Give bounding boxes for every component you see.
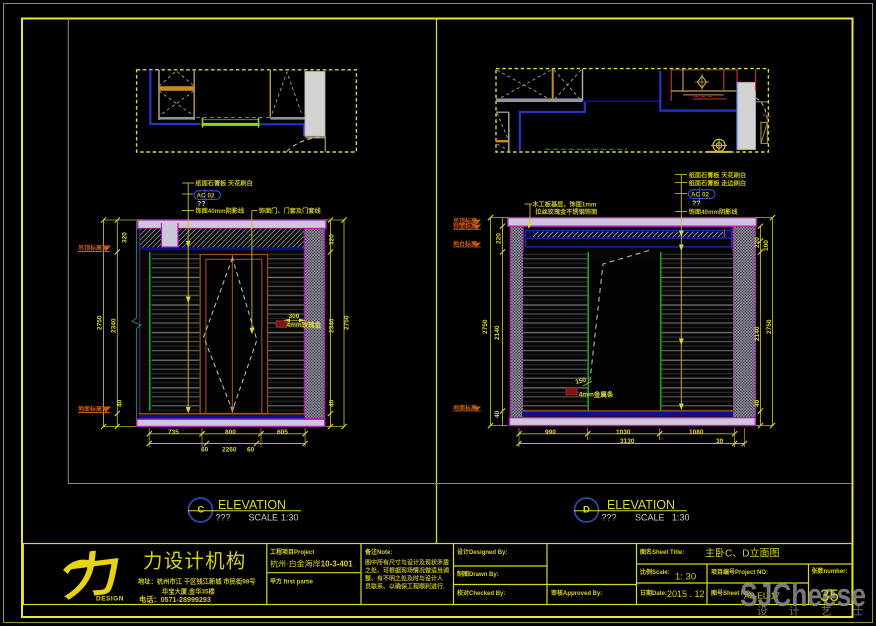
svg-text:1:30: 1:30 — [672, 513, 690, 523]
svg-text:纸面石膏板 天花刷白: 纸面石膏板 天花刷白 — [689, 171, 746, 179]
svg-text:2015 . 12: 2015 . 12 — [667, 589, 705, 599]
svg-text:735: 735 — [168, 429, 179, 436]
svg-text:35: 35 — [820, 586, 839, 605]
svg-text:3130: 3130 — [620, 438, 635, 445]
svg-text:990: 990 — [545, 429, 556, 436]
svg-text:拉丝玫瑰金不锈钢饰面: 拉丝玫瑰金不锈钢饰面 — [535, 208, 597, 216]
svg-text:地面标高: 地面标高 — [78, 405, 102, 413]
svg-text:SCALE: SCALE — [635, 513, 665, 523]
svg-text:2750: 2750 — [97, 315, 104, 330]
svg-text:2340: 2340 — [329, 318, 336, 333]
svg-text:工程项目Project: 工程项目Project — [270, 548, 314, 556]
svg-text:审核Approved By:: 审核Approved By: — [551, 589, 602, 597]
svg-text:SCALE: SCALE — [249, 513, 279, 523]
svg-text:员联系、以确保工程顺利进行.: 员联系、以确保工程顺利进行. — [365, 583, 445, 591]
svg-text:1: 30: 1: 30 — [675, 572, 696, 583]
svg-text:木工板基层，饰面1mm: 木工板基层，饰面1mm — [531, 201, 596, 209]
svg-text:40: 40 — [329, 399, 336, 407]
svg-text:2750: 2750 — [344, 315, 351, 330]
svg-text:2340: 2340 — [111, 318, 118, 333]
svg-text:02: 02 — [208, 192, 215, 199]
svg-text:整、有不明之处及时与设计人: 整、有不明之处及时与设计人 — [364, 575, 444, 583]
svg-text:日期Date:: 日期Date: — [640, 589, 667, 597]
svg-text:之处、可根据现场情况做适当调: 之处、可根据现场情况做适当调 — [365, 567, 449, 575]
svg-text:1:30: 1:30 — [281, 513, 299, 523]
svg-text:主卧C、D立面图: 主卧C、D立面图 — [705, 547, 779, 560]
svg-text:2750: 2750 — [766, 319, 773, 334]
svg-text:图名Sheet Title:: 图名Sheet Title: — [640, 548, 684, 556]
svg-text:2140: 2140 — [494, 325, 501, 340]
svg-text:30: 30 — [716, 438, 724, 445]
svg-text:力设计机构: 力设计机构 — [143, 551, 247, 573]
svg-text:ELEVATION: ELEVATION — [218, 498, 286, 512]
svg-text:校对Checked By:: 校对Checked By: — [457, 589, 505, 597]
svg-text:220: 220 — [754, 237, 761, 248]
svg-text:图中所有尺寸与设计及现状矛盾: 图中所有尺寸与设计及现状矛盾 — [365, 559, 449, 567]
svg-text:张数number:: 张数number: — [812, 567, 848, 575]
svg-text:ELEVATION: ELEVATION — [607, 498, 675, 512]
svg-text:纸面石膏板 天花刷白: 纸面石膏板 天花刷白 — [195, 180, 252, 188]
svg-text:电话：0571-28999293: 电话：0571-28999293 — [139, 595, 211, 604]
svg-text:320: 320 — [122, 232, 129, 243]
svg-text:???: ??? — [216, 513, 231, 523]
svg-text:300: 300 — [289, 313, 300, 320]
svg-text:饰面40mm阴影线: 饰面40mm阴影线 — [194, 207, 245, 215]
svg-text:2140: 2140 — [754, 326, 761, 341]
svg-text:1080: 1080 — [689, 429, 704, 436]
svg-text:605: 605 — [277, 429, 288, 436]
svg-text:甲方 first partie: 甲方 first partie — [270, 578, 314, 586]
svg-text:1030: 1030 — [616, 429, 631, 436]
svg-text:饰面40mm阴影线: 饰面40mm阴影线 — [688, 208, 739, 216]
svg-text:AC: AC — [691, 191, 700, 198]
svg-text:02: 02 — [702, 191, 709, 198]
svg-text:吊顶标高: 吊顶标高 — [78, 244, 102, 252]
svg-text:2260: 2260 — [222, 447, 237, 454]
svg-text:220: 220 — [496, 233, 503, 244]
svg-text:4mm玫瑰金: 4mm玫瑰金 — [287, 320, 322, 329]
svg-text:60: 60 — [247, 447, 255, 454]
svg-text:杭州·白金海岸10-3-401: 杭州·白金海岸10-3-401 — [270, 559, 353, 569]
svg-text:40: 40 — [117, 399, 124, 407]
svg-text:饰面门、门套及门套线: 饰面门、门套及门套线 — [258, 207, 322, 215]
svg-text:100: 100 — [763, 240, 770, 251]
svg-text:项目编号Project NO:: 项目编号Project NO: — [711, 568, 768, 576]
svg-text:800: 800 — [225, 429, 236, 436]
svg-text:??: ?? — [197, 201, 206, 208]
svg-text:制图Drawn By:: 制图Drawn By: — [457, 570, 499, 578]
svg-text:2750: 2750 — [482, 319, 489, 334]
svg-text:40: 40 — [754, 399, 761, 407]
svg-text:DESIGN: DESIGN — [96, 596, 124, 603]
svg-text:地址：杭州市江 干区钱江新城 市民街98号: 地址：杭州市江 干区钱江新城 市民街98号 — [138, 577, 256, 586]
svg-text:设计Designed By:: 设计Designed By: — [457, 548, 507, 556]
svg-text:备注Note:: 备注Note: — [364, 548, 392, 556]
svg-text:4mm金属条: 4mm金属条 — [579, 389, 614, 398]
svg-text:60: 60 — [201, 447, 209, 454]
svg-text:比例Scale:: 比例Scale: — [640, 568, 670, 576]
svg-text:C: C — [198, 505, 205, 516]
svg-text:D: D — [583, 505, 590, 516]
svg-text:纸面石膏板 走边刷白: 纸面石膏板 走边刷白 — [689, 179, 746, 187]
svg-text:40: 40 — [494, 410, 501, 418]
svg-text:320: 320 — [329, 234, 336, 245]
svg-text:???: ??? — [602, 513, 617, 523]
svg-text:??: ?? — [692, 201, 701, 208]
svg-text:AC: AC — [197, 192, 206, 199]
svg-text:设计艺士: 设计艺士 — [757, 605, 876, 618]
